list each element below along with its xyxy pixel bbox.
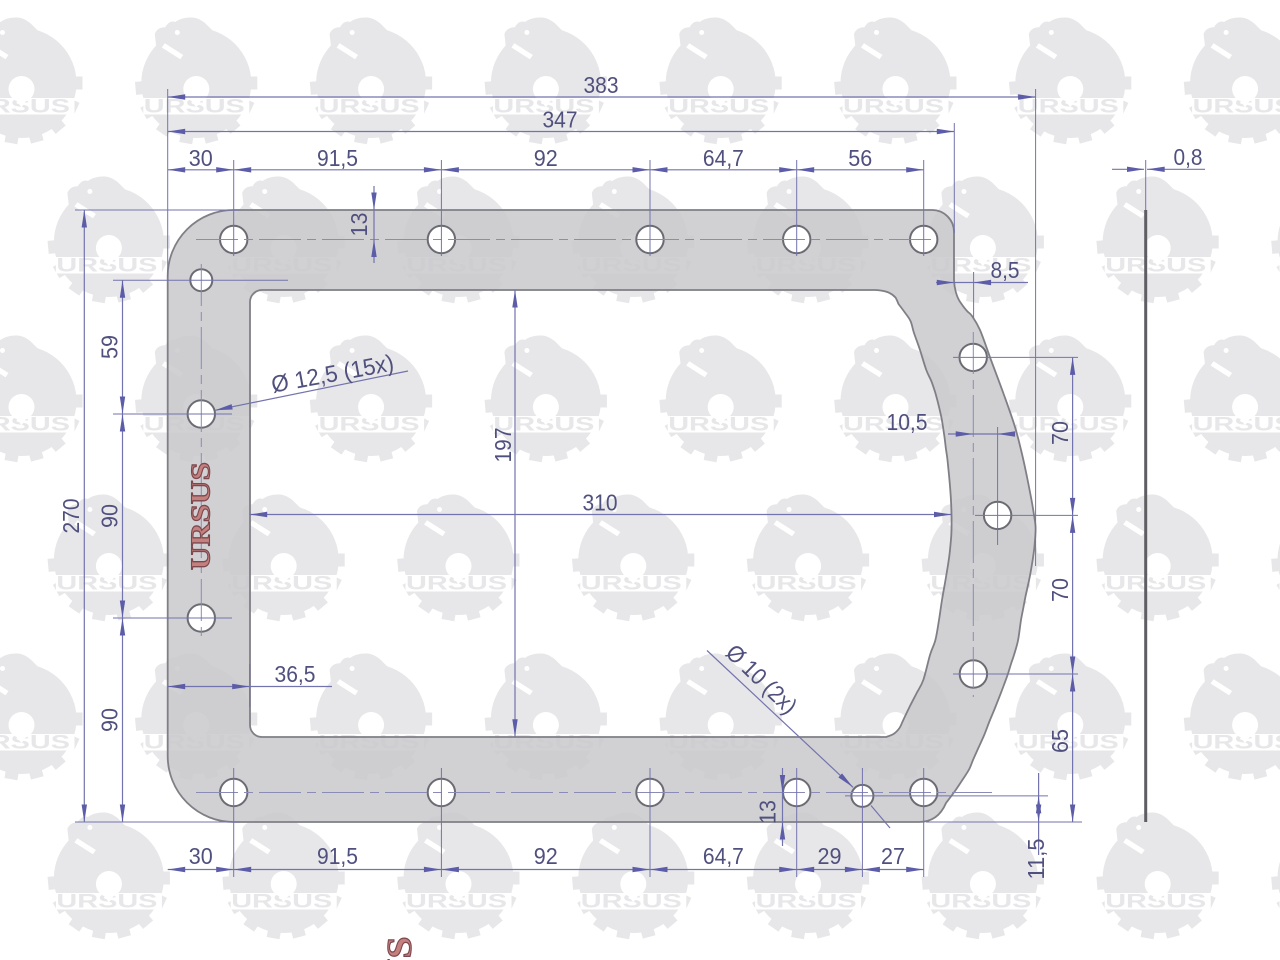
svg-text:URSUS: URSUS [186,462,216,570]
svg-text:URSUS: URSUS [380,937,419,960]
svg-text:64,7: 64,7 [703,843,744,869]
svg-text:13: 13 [346,213,372,237]
svg-text:92: 92 [534,843,558,869]
svg-text:65: 65 [1047,729,1073,753]
svg-text:91,5: 91,5 [317,145,358,171]
svg-text:90: 90 [97,708,123,732]
svg-text:30: 30 [189,843,213,869]
svg-text:56: 56 [848,145,872,171]
svg-text:0,8: 0,8 [1174,144,1203,170]
svg-text:29: 29 [818,843,842,869]
svg-text:36,5: 36,5 [275,661,316,687]
svg-text:8,5: 8,5 [991,257,1020,283]
svg-text:91,5: 91,5 [317,843,358,869]
svg-text:13: 13 [755,800,781,824]
svg-text:70: 70 [1047,578,1073,602]
svg-text:11,5: 11,5 [1023,839,1049,880]
svg-text:90: 90 [97,504,123,528]
svg-text:383: 383 [584,72,619,98]
svg-text:70: 70 [1047,421,1073,445]
svg-text:10,5: 10,5 [887,409,928,435]
svg-text:197: 197 [490,428,516,463]
svg-text:310: 310 [583,490,618,516]
svg-text:27: 27 [881,843,905,869]
svg-text:30: 30 [189,145,213,171]
svg-text:64,7: 64,7 [703,145,744,171]
svg-text:92: 92 [534,145,558,171]
svg-text:270: 270 [58,499,84,534]
svg-text:347: 347 [543,107,578,133]
svg-text:59: 59 [97,335,123,359]
